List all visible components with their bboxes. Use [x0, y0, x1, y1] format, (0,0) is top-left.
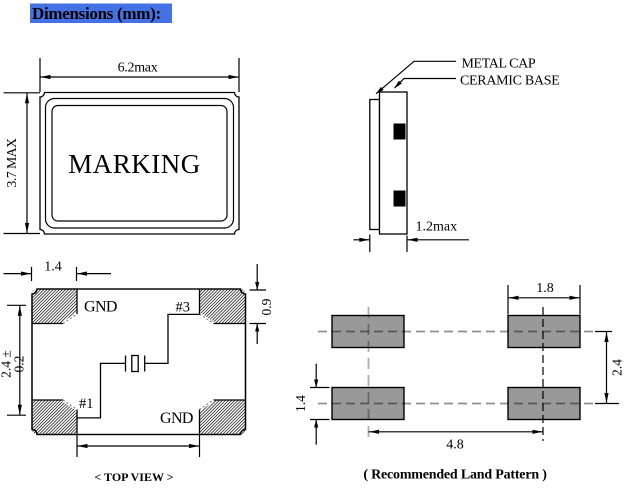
- svg-text:GND: GND: [84, 299, 117, 316]
- svg-text:Dimensions (mm):: Dimensions (mm):: [32, 4, 161, 23]
- svg-text:1.2max: 1.2max: [416, 220, 458, 235]
- svg-text:#3: #3: [176, 300, 191, 316]
- svg-text:1.4: 1.4: [44, 260, 62, 275]
- svg-text:4.8: 4.8: [446, 438, 464, 453]
- svg-text:1.4: 1.4: [293, 395, 308, 412]
- svg-text:#1: #1: [79, 396, 94, 412]
- svg-text:0.2: 0.2: [12, 356, 27, 373]
- svg-text:1.8: 1.8: [536, 281, 554, 296]
- svg-text:MARKING: MARKING: [68, 149, 201, 179]
- svg-text:6.2max: 6.2max: [118, 61, 158, 76]
- svg-text:CERAMIC BASE: CERAMIC BASE: [460, 74, 559, 89]
- svg-text:3.7 MAX: 3.7 MAX: [4, 138, 19, 188]
- svg-text:GND: GND: [160, 410, 193, 427]
- svg-text:0.9: 0.9: [259, 298, 274, 315]
- svg-text:< TOP VIEW >: < TOP VIEW >: [94, 470, 173, 484]
- svg-text:2.4: 2.4: [610, 359, 625, 376]
- svg-text:( Recommended Land Pattern ): ( Recommended Land Pattern ): [363, 468, 547, 483]
- svg-text:METAL CAP: METAL CAP: [462, 57, 536, 72]
